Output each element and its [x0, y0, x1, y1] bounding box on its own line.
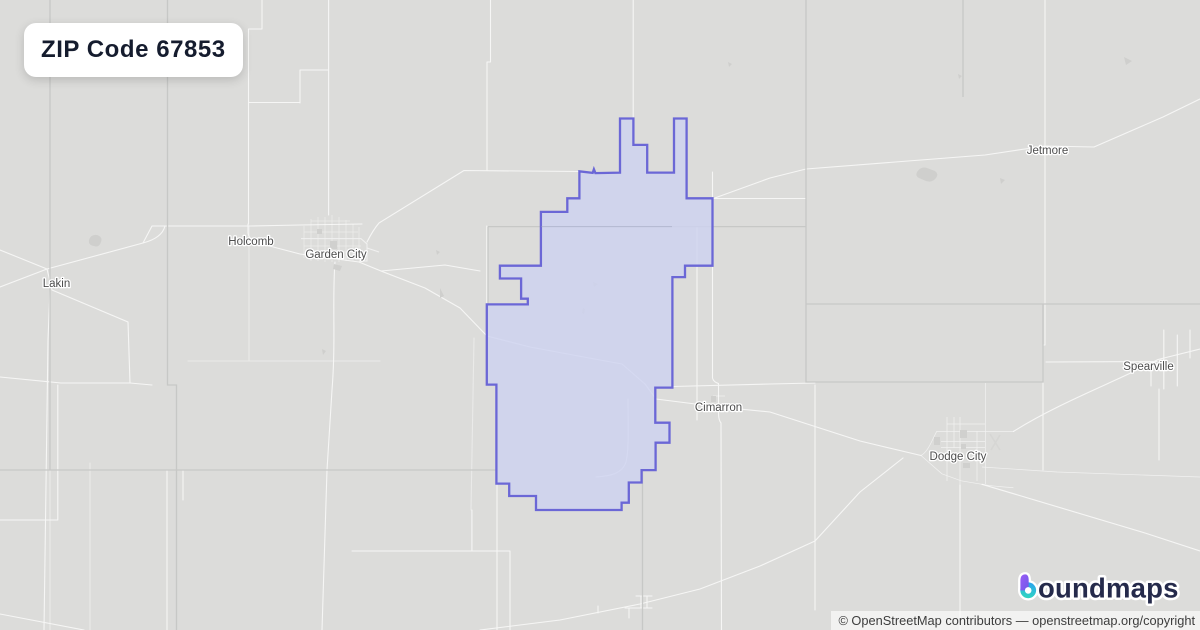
svg-text:Lakin: Lakin: [43, 278, 71, 290]
svg-text:Dodge City: Dodge City: [930, 451, 987, 463]
svg-text:Spearville: Spearville: [1123, 361, 1174, 373]
svg-text:Holcomb: Holcomb: [228, 236, 273, 248]
svg-text:Jetmore: Jetmore: [1027, 145, 1069, 157]
svg-text:oundmaps: oundmaps: [1038, 573, 1179, 604]
svg-text:Cimarron: Cimarron: [695, 402, 742, 414]
svg-text:Garden City: Garden City: [305, 249, 367, 261]
